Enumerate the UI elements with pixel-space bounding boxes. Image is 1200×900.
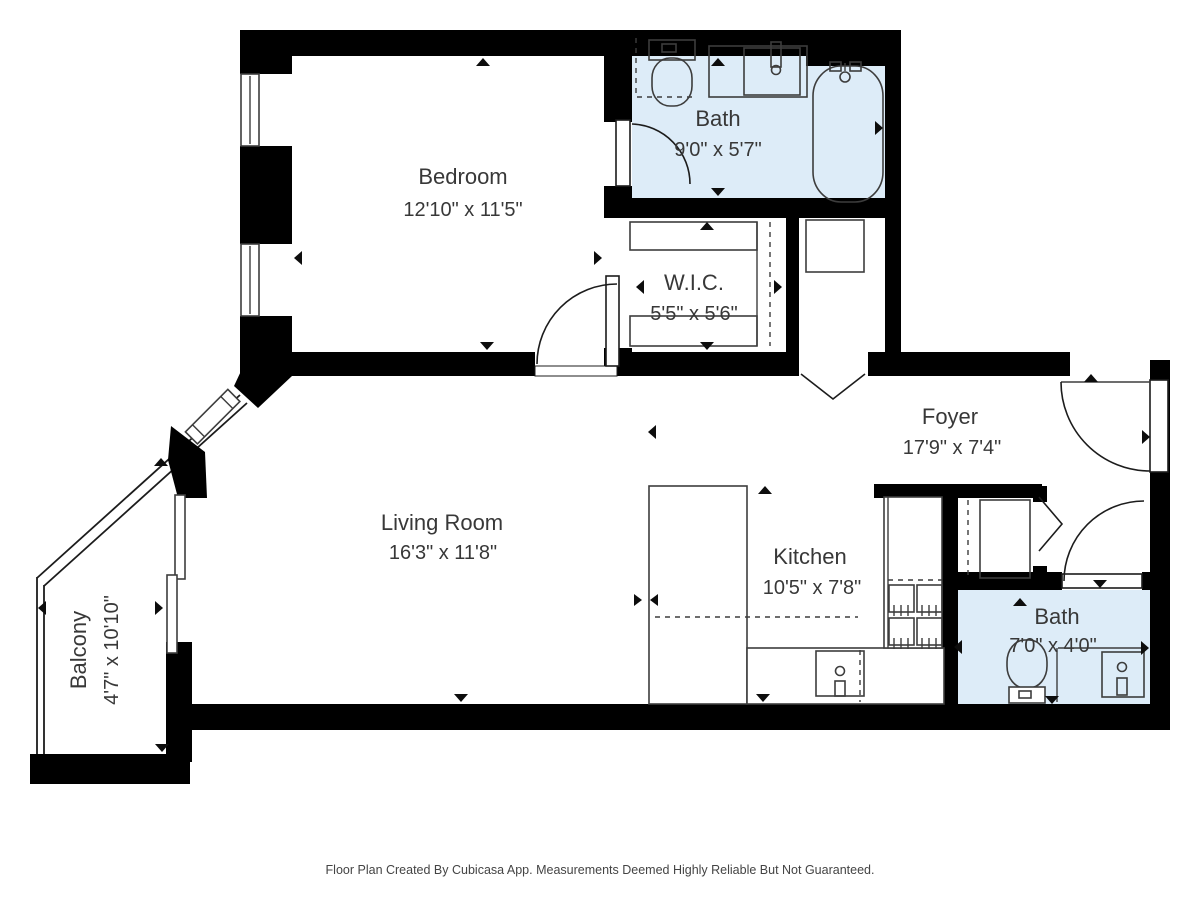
wall-bath2-top	[958, 572, 1062, 590]
balcony-rail-diagonal-inner	[44, 403, 247, 586]
bath2-label: Bath	[1034, 604, 1079, 629]
wall-band-middle	[617, 352, 799, 376]
arrow-icon	[454, 694, 468, 702]
wall-bedroom-bath-divider	[604, 30, 632, 122]
arrow-icon	[155, 601, 163, 615]
wall-top	[245, 30, 901, 56]
bedroom-label: Bedroom	[418, 164, 507, 189]
wall-wic-closet-divider	[786, 198, 799, 376]
wall-bath2-top-stub	[1142, 572, 1150, 590]
closet-appliance-icon	[806, 220, 864, 272]
wic-label: W.I.C.	[664, 270, 724, 295]
arrow-icon	[1084, 374, 1098, 382]
arrow-icon	[1142, 430, 1150, 444]
kitchen-label: Kitchen	[773, 544, 846, 569]
balcony-sliding-door-icon	[167, 495, 185, 653]
wall-west-pier	[166, 642, 192, 762]
wall-bath1-right	[885, 30, 901, 376]
wic-shelf-top	[630, 222, 757, 250]
kitchen-counter-right	[884, 497, 942, 648]
wall-bath1-bottom	[604, 198, 885, 218]
bath1-floor	[632, 56, 885, 200]
bath2-dims: 7'0" x 4'0"	[1009, 635, 1096, 657]
bedroom-dims: 12'10" x 11'5"	[403, 199, 522, 221]
balcony-dims: 4'7" x 10'10"	[101, 595, 123, 705]
floor-plan-canvas: Bedroom 12'10" x 11'5" Bath 9'0" x 5'7" …	[0, 0, 1200, 900]
arrow-icon	[636, 280, 644, 294]
arrow-icon	[476, 58, 490, 66]
wall-left-pier2	[240, 146, 292, 244]
arrow-icon	[38, 601, 46, 615]
bath2-door-icon	[1062, 501, 1144, 588]
bath1-dims: 9'0" x 5'7"	[674, 139, 761, 161]
bedroom-window-2-icon	[241, 244, 259, 316]
arrow-icon	[700, 222, 714, 230]
arrow-icon	[648, 425, 656, 439]
foyer-closet-interior	[968, 500, 1030, 578]
wall-balcony-slab	[30, 754, 190, 784]
arrow-icon	[758, 486, 772, 494]
bath1-label: Bath	[695, 106, 740, 131]
wall-bottom	[184, 704, 1170, 730]
entry-door-icon	[1061, 380, 1168, 472]
closet-shelf-outline	[980, 500, 1030, 578]
foyer-closet-bifold-icon	[1039, 497, 1062, 551]
wic-dims: 5'5" x 5'6"	[650, 303, 737, 325]
balcony-label: Balcony	[66, 611, 91, 689]
foyer-dims: 17'9" x 7'4"	[903, 437, 1002, 459]
bedroom-window-1-icon	[241, 74, 259, 146]
balcony-railing	[37, 395, 247, 755]
bedroom-door-icon	[535, 276, 619, 376]
wall-closet-stub-top	[1033, 486, 1047, 502]
wall-left-pier1	[240, 30, 292, 74]
arrow-icon	[634, 594, 642, 606]
foyer-label: Foyer	[922, 404, 978, 429]
wic-closet-bifold-icon	[799, 351, 868, 399]
arrow-icon	[480, 342, 494, 350]
living-room-label: Living Room	[381, 510, 503, 535]
floor-plan-page: Bedroom 12'10" x 11'5" Bath 9'0" x 5'7" …	[0, 0, 1200, 900]
arrow-icon	[774, 280, 782, 294]
kitchen-dims: 10'5" x 7'8"	[763, 577, 862, 599]
footer-disclaimer: Floor Plan Created By Cubicasa App. Meas…	[326, 863, 875, 877]
wall-band-left	[288, 352, 535, 376]
kitchen-counter-tall	[649, 486, 747, 704]
living-room-dims: 16'3" x 11'8"	[389, 542, 497, 564]
wall-band-right	[868, 352, 1070, 376]
arrow-icon	[594, 251, 602, 265]
arrow-icon	[294, 251, 302, 265]
